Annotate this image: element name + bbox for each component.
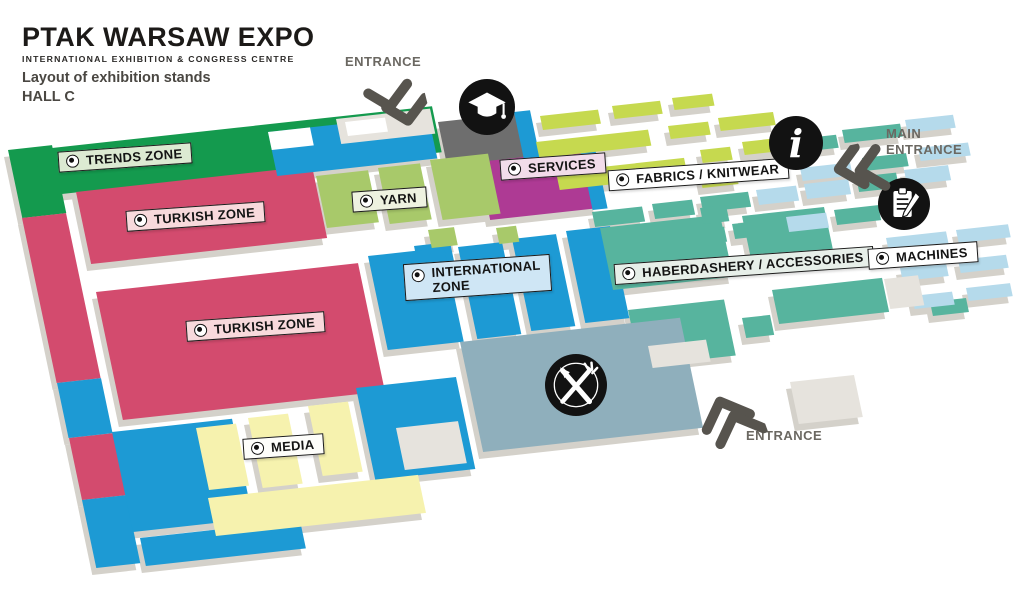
services-zone-text: SERVICES (528, 156, 597, 176)
bullseye-icon (508, 162, 522, 176)
bullseye-icon (194, 323, 208, 337)
bullseye-icon (876, 251, 890, 265)
map-caption: Layout of exhibition stands HALL C (22, 69, 211, 107)
hall-c-floor-plan: PTAK WARSAW EXPO INTERNATIONAL EXHIBITIO… (0, 0, 1024, 603)
yarn-zone-text: YARN (379, 190, 417, 208)
trends-zone-text: TRENDS ZONE (86, 146, 183, 168)
bullseye-icon (411, 269, 425, 283)
caption-line2: HALL C (22, 88, 211, 107)
restaurant-icon (545, 354, 607, 421)
bullseye-icon (134, 213, 148, 227)
bullseye-icon (622, 267, 636, 281)
expo-title: PTAK WARSAW EXPO (22, 24, 314, 51)
main-entrance-label: MAIN ENTRANCE (886, 126, 962, 159)
turkish-zone-text: TURKISH ZONE (154, 205, 256, 227)
bullseye-icon (66, 154, 80, 168)
top-entrance-label: ENTRANCE (345, 54, 421, 70)
bullseye-icon (360, 194, 374, 208)
turkish-zone-text: TURKISH ZONE (214, 315, 316, 337)
caption-line1: Layout of exhibition stands (22, 69, 211, 88)
bullseye-icon (251, 441, 265, 455)
education-icon (459, 79, 515, 140)
info-icon: i (769, 116, 823, 175)
media-zone-text: MEDIA (271, 437, 315, 455)
svg-text:i: i (789, 121, 803, 166)
machines-zone-text: MACHINES (896, 245, 969, 265)
international-zone-text: INTERNATIONAL ZONE (431, 258, 542, 296)
bullseye-icon (616, 173, 630, 187)
expo-subtitle: INTERNATIONAL EXHIBITION & CONGRESS CENT… (22, 54, 314, 64)
main-entrance-arrow-icon (825, 139, 894, 207)
expo-logo: PTAK WARSAW EXPO INTERNATIONAL EXHIBITIO… (22, 24, 314, 64)
